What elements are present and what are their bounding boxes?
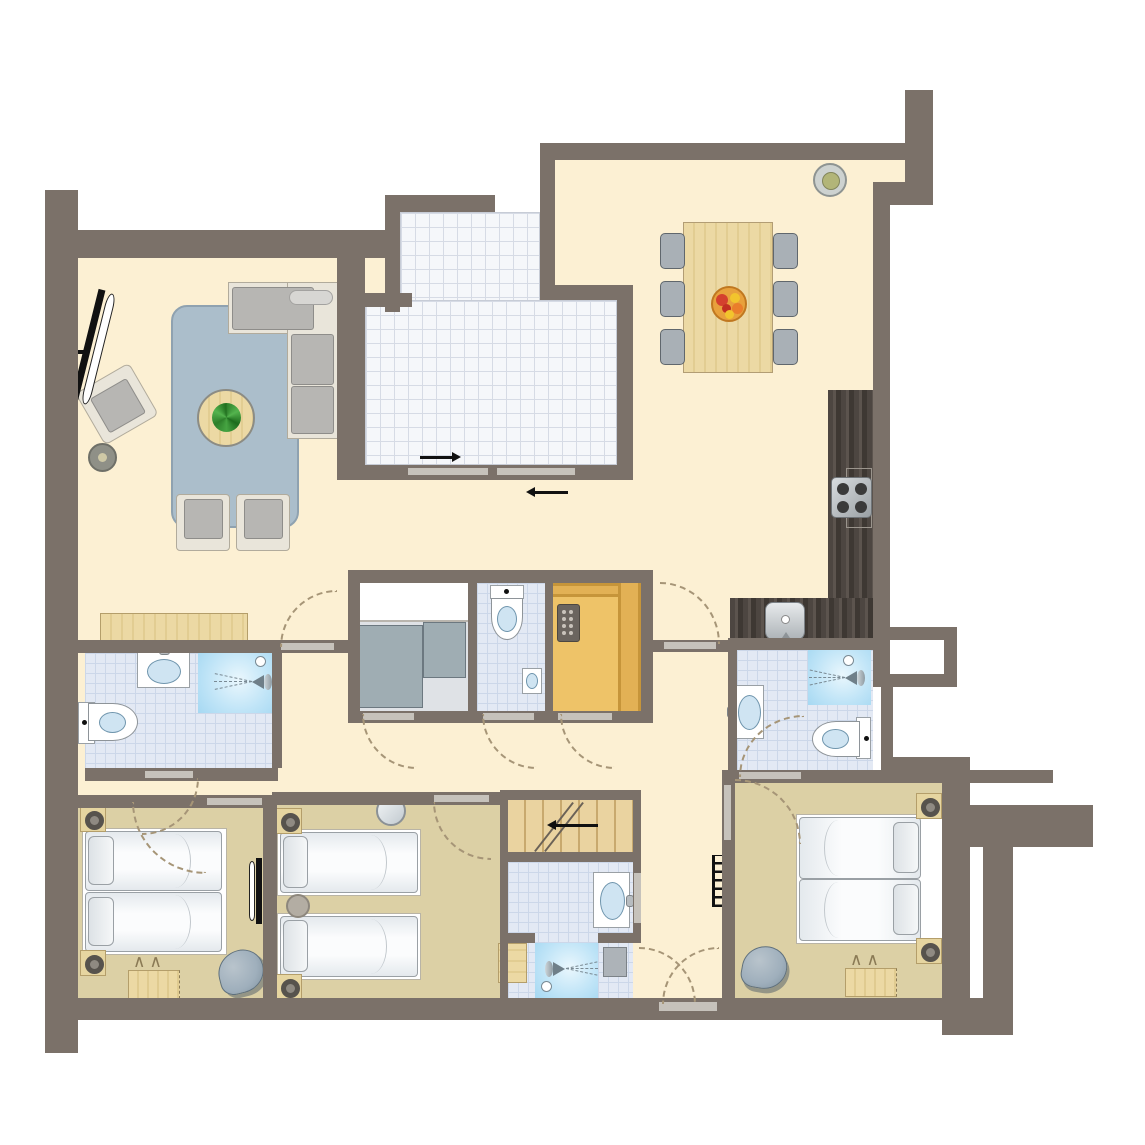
toilet-right-bowl <box>822 729 849 749</box>
door-threshold-bathroom-middle <box>634 873 641 923</box>
toilet-right <box>812 721 860 757</box>
wall-kitchen-bathroom <box>728 638 890 650</box>
toilet-left-bowl <box>99 712 126 733</box>
sofa-cushion-mid <box>291 334 334 385</box>
shower-head-body-middle <box>545 961 553 977</box>
toilet-right-button <box>864 736 869 741</box>
sofa-bolster-pillow <box>289 290 333 305</box>
stairs-arrow-icon <box>547 820 556 830</box>
heater-dot <box>569 624 573 628</box>
wall-terrace-right <box>617 293 633 480</box>
storage-unit-large <box>357 625 423 708</box>
bed-3a-foot-curve <box>824 820 848 875</box>
spray-line-5 <box>809 677 845 678</box>
wall-storage-toilet <box>468 583 477 711</box>
heater-dot <box>562 624 566 628</box>
bed-1-pillow-a <box>88 836 114 885</box>
shower-head-icon-left <box>252 675 264 689</box>
shower-room-panel <box>603 947 627 977</box>
wall-midbath-partial-right <box>598 933 641 943</box>
dining-chair-3 <box>660 329 685 365</box>
wall-light-icon-b1-bottom <box>80 950 106 976</box>
shower-head-icon-middle <box>553 962 565 976</box>
sofa-cushion-bottom <box>291 386 334 434</box>
terrace-tiles-lower <box>365 300 617 465</box>
shower-head-body-left <box>264 674 272 690</box>
floor-plan-canvas: ∧∧ ∧∧ <box>0 0 1145 1145</box>
wall-outer-right-bar <box>983 847 1013 1013</box>
spray-line-2 <box>214 681 252 682</box>
storage-unit-small <box>423 622 466 678</box>
living-chair-2-seat <box>244 499 283 539</box>
wall-right-chunk <box>970 805 1093 847</box>
wall-terrace-step <box>365 293 412 307</box>
kitchen-sink <box>765 602 805 640</box>
bed-1-bench <box>128 970 180 999</box>
living-chair-2 <box>236 494 290 551</box>
sauna-heater-icon <box>557 604 580 642</box>
wall-right <box>873 205 890 687</box>
dining-chair-6 <box>773 329 798 365</box>
storage-shelf <box>353 583 468 622</box>
door-threshold-bedroom-3 <box>724 785 731 840</box>
bed-1-pillow-b <box>88 897 114 946</box>
wall-light-icon-b2-bottom <box>276 974 302 1000</box>
tv-screen-bedroom-1 <box>249 861 255 921</box>
window-nook-bottom <box>890 674 957 687</box>
sliding-arrow-line-left <box>534 491 568 494</box>
living-chair-1-seat <box>184 499 223 539</box>
wall-light-icon-b1-top <box>80 806 106 832</box>
toilet-left <box>88 703 138 741</box>
heater-dot <box>562 617 566 621</box>
fruit-yellow <box>730 293 740 303</box>
heater-dot <box>562 631 566 635</box>
dining-chair-1 <box>660 233 685 269</box>
wall-light-icon-b2-top <box>276 808 302 834</box>
bed-1b-foot-curve <box>164 895 191 948</box>
wall-light-ring <box>85 811 104 830</box>
wall-midblock-top <box>348 570 653 583</box>
wall-midblock-right <box>641 570 653 723</box>
burner-2 <box>855 483 867 495</box>
sink-drain <box>781 615 790 624</box>
wall-midbath-partial-left <box>508 933 535 943</box>
heater-dot <box>569 617 573 621</box>
toilet-room-sink <box>522 668 542 694</box>
wall-stairs-left <box>500 790 508 1000</box>
shower-head-icon-right <box>845 671 857 685</box>
wall-stub-top-right <box>905 90 933 205</box>
heater-dot <box>562 610 566 614</box>
wall-left <box>45 230 78 1053</box>
plant-icon <box>212 403 241 432</box>
bathroom-left-shower-valve <box>255 656 266 667</box>
living-chair-1 <box>176 494 230 551</box>
heater-dot <box>569 610 573 614</box>
sliding-arrow-line-right <box>420 456 454 459</box>
heater-dot <box>569 631 573 635</box>
wall-top-dining <box>540 143 915 160</box>
fruit-bowl-icon <box>711 286 747 322</box>
bed-2-pillow-b <box>283 920 308 972</box>
bench-chevrons-3: ∧∧ <box>850 955 883 965</box>
ceiling-light-center <box>822 172 840 190</box>
toilet-room-sink-basin <box>526 673 538 689</box>
wall-toilet-sauna <box>545 583 553 711</box>
toilet-left-button <box>82 720 87 725</box>
shower-room-valve <box>541 981 552 992</box>
sliding-door-panel-1 <box>408 468 488 475</box>
sliding-door-icon-right <box>452 452 461 462</box>
wall-light-icon-b3-bottom <box>916 938 942 964</box>
door-threshold-bedroom-1 <box>207 798 262 805</box>
wall-step-top-right <box>873 182 905 205</box>
bed-3-pillow-b <box>893 884 919 935</box>
wall-bathroom-left-right <box>272 653 282 768</box>
door-threshold-bathroom-left <box>145 771 193 778</box>
bed-2-pillow-a <box>283 836 308 888</box>
shower-head-body-right <box>857 670 865 686</box>
wall-terrace-left <box>337 230 365 480</box>
wall-light-icon-b3-top <box>916 793 942 819</box>
wall-light-ring <box>921 943 940 962</box>
bathroom-left-sink <box>147 659 181 684</box>
toilet-mid-button <box>504 589 509 594</box>
wall-terrace-upper-right <box>540 143 555 300</box>
burner-4 <box>855 501 867 513</box>
bathroom-left-vanity <box>137 652 190 688</box>
wall-bedroom-3-right <box>942 777 970 1035</box>
burner-1 <box>837 483 849 495</box>
wall-bottom <box>78 998 942 1020</box>
ceiling-light-icon <box>813 163 847 197</box>
bed-3-pillow-a <box>893 822 919 873</box>
pouf <box>88 443 117 472</box>
bed-2b-foot-curve <box>360 919 387 973</box>
stove-icon <box>831 477 872 518</box>
toilet-mid-bowl <box>497 606 517 632</box>
wall-bathroom-right-left <box>728 650 737 773</box>
bathroom-right-sink <box>738 695 761 730</box>
dining-chair-4 <box>773 233 798 269</box>
bathroom-right-shower-valve <box>843 655 854 666</box>
dining-chair-5 <box>773 281 798 317</box>
wall-stairs-bottom <box>508 852 633 862</box>
sauna-bench-right <box>618 583 641 711</box>
wall-midblock-left <box>348 570 360 723</box>
bench-chevrons-1: ∧∧ <box>133 957 166 967</box>
wall-stairs-top <box>500 790 641 800</box>
wall-right-lower <box>881 687 893 770</box>
burner-3 <box>837 501 849 513</box>
bathroom-middle-sink <box>600 882 625 920</box>
bedroom-2-side-table <box>286 894 310 918</box>
wall-light-ring <box>921 798 940 817</box>
terrace-tiles-upper <box>400 212 540 307</box>
bed-3-bench <box>845 968 897 997</box>
dining-chair-2 <box>660 281 685 317</box>
bathroom-middle-vanity <box>593 872 630 928</box>
wall-bedroom-divider <box>263 795 277 998</box>
wall-light-ring <box>281 979 300 998</box>
sliding-door-icon-left <box>526 487 535 497</box>
bed-2a-foot-curve <box>360 835 387 889</box>
door-threshold-bedroom-2 <box>434 795 489 802</box>
wall-light-ring <box>281 813 300 832</box>
pouf-center <box>98 453 107 462</box>
stairs-arrow-line <box>556 824 598 827</box>
wall-terrace-top <box>385 195 495 212</box>
fruit-yellow-2 <box>725 310 734 319</box>
bed-3b-foot-curve <box>824 882 848 937</box>
sliding-door-panel-2 <box>497 468 575 475</box>
tv-icon-bedroom-1 <box>256 858 262 924</box>
wall-light-ring <box>85 955 104 974</box>
